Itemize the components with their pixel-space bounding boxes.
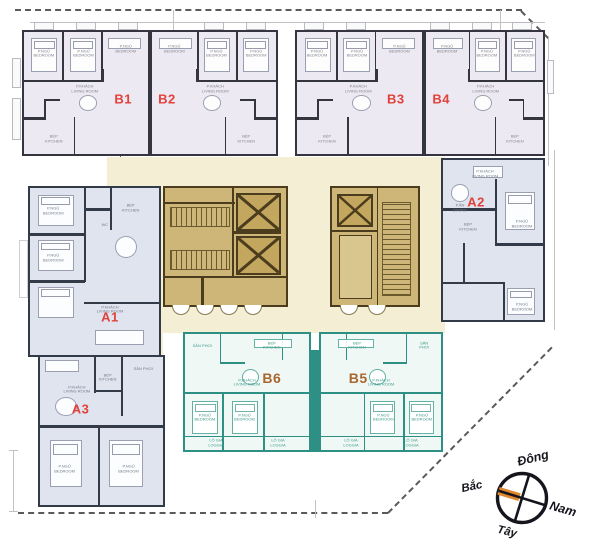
balcony-ledge	[76, 22, 96, 30]
room-label-kitchen: BẾP KITCHEN	[459, 223, 477, 232]
bed	[109, 440, 143, 487]
room-label-kitchen: BẾP KITCHEN	[99, 373, 117, 382]
wall	[406, 334, 408, 364]
wall	[40, 425, 163, 428]
unit-label-B6: B6	[262, 370, 281, 386]
balcony-ledge	[430, 22, 450, 30]
unit-B6: P.KHÁCH LIVING ROOMBẾP KITCHENSÂN PHƠIP.…	[183, 332, 311, 452]
wall	[317, 99, 319, 120]
bed	[370, 401, 395, 433]
room-label-yard: SÂN PHƠI	[134, 367, 153, 372]
bed	[38, 287, 74, 319]
wall	[256, 117, 276, 119]
wall	[110, 188, 112, 230]
wall	[102, 69, 104, 82]
bed	[343, 38, 369, 72]
room-label-living: P.KHÁCH LIVING ROOM	[71, 85, 98, 94]
room-label-living: P.KHÁCH LIVING ROOM	[64, 385, 91, 394]
table	[369, 369, 386, 385]
unit-B2: P.KHÁCH LIVING ROOMP.NGỦ BEDROOMP.NGỦ BE…	[150, 30, 278, 156]
wall	[336, 32, 338, 81]
wall	[121, 357, 123, 416]
wall	[469, 80, 543, 82]
balcony-ledge	[204, 22, 224, 30]
unit-A1: P.KHÁCH LIVING ROOMP.NGỦ BEDROOMP.NGỦ BE…	[28, 186, 161, 357]
wall	[198, 80, 276, 82]
unit-A3: P.KHÁCH LIVING ROOMBẾP KITCHENSÂN PHƠIP.…	[38, 355, 165, 507]
bed	[192, 401, 218, 433]
wall	[94, 357, 96, 393]
table	[203, 95, 222, 111]
wall	[524, 117, 543, 119]
wall	[495, 117, 497, 154]
unit-B4: P.KHÁCH LIVING ROOMP.NGỦ BEDROOMP.NGỦ BE…	[424, 30, 545, 156]
table	[115, 236, 137, 258]
wall	[376, 69, 378, 82]
wall	[364, 394, 366, 450]
room-label-loggia: LÔ GIA LOGGIA	[343, 439, 358, 448]
wall	[185, 392, 309, 394]
furniture	[159, 38, 191, 49]
bed	[50, 440, 82, 487]
unit-label-A1: A1	[101, 309, 119, 324]
room-label-kitchen: BẾP KITCHEN	[237, 135, 255, 144]
wall	[495, 179, 497, 246]
furniture	[95, 330, 144, 345]
furniture	[473, 166, 503, 177]
bed	[505, 192, 535, 230]
balcony-ledge	[118, 22, 138, 30]
wall	[254, 99, 256, 120]
room-label-yard: SÂN PHƠI	[416, 341, 433, 350]
unit-label-A3: A3	[72, 401, 90, 416]
bed	[232, 401, 258, 433]
room-label-loggia: LÔ GIA LOGGIA	[270, 439, 285, 448]
furniture	[254, 339, 291, 348]
wall	[84, 302, 159, 305]
wall	[44, 99, 60, 101]
furniture	[433, 38, 463, 49]
balcony-ledge	[304, 22, 324, 30]
bed	[38, 195, 74, 227]
furniture	[45, 360, 79, 372]
table	[352, 95, 371, 111]
balcony-ledge	[512, 22, 532, 30]
wall	[297, 117, 317, 119]
unit-A2: P.KHÁCH LIVING ROOMP.ĂN DININGBẾP KITCHE…	[441, 158, 545, 322]
floor-plan: P.KHÁCH LIVING ROOMP.NGỦ BEDROOMP.NGỦ BE…	[0, 0, 600, 550]
table	[242, 369, 259, 385]
wall	[523, 99, 525, 120]
wall	[321, 392, 441, 394]
unit-B5: P.KHÁCH LIVING ROOMBẾP KITCHENSÂN PHƠIP.…	[319, 332, 443, 452]
wall	[321, 436, 441, 437]
unit-label-B3: B3	[387, 92, 405, 107]
balcony-ledge	[246, 22, 266, 30]
wall	[30, 280, 85, 283]
wall	[24, 117, 44, 119]
wall	[185, 436, 309, 437]
room-label-kitchen: BẾP KITCHEN	[506, 135, 524, 144]
compass: Đông Bắc Nam Tây	[455, 440, 600, 550]
bed	[31, 38, 57, 72]
room-label-yard: SÂN PHƠI	[193, 343, 212, 348]
room-label-loggia: LÔ GIA LOGGIA	[403, 439, 418, 448]
wall	[403, 394, 405, 450]
wall	[317, 99, 333, 101]
furniture	[382, 38, 415, 49]
bed	[305, 38, 331, 72]
wall	[98, 425, 100, 505]
balcony-ledge	[472, 22, 492, 30]
wall	[236, 32, 238, 81]
wall	[297, 80, 376, 82]
bed	[409, 401, 434, 433]
unit-label-B5: B5	[349, 370, 368, 386]
unit-label-A2: A2	[467, 194, 485, 209]
bed	[511, 38, 536, 72]
unit-B3: P.KHÁCH LIVING ROOMP.NGỦ BEDROOMP.NGỦ BE…	[295, 30, 424, 156]
room-label-living: P.KHÁCH LIVING ROOM	[202, 85, 229, 94]
balcony-ledge	[12, 98, 21, 140]
table	[79, 95, 98, 111]
table	[474, 95, 492, 111]
furniture	[338, 339, 374, 348]
unit-label-B4: B4	[432, 92, 450, 107]
wall	[509, 99, 524, 101]
wall	[240, 99, 256, 101]
bed	[243, 38, 269, 72]
wall	[220, 334, 222, 364]
wall	[443, 282, 503, 285]
wall	[44, 99, 46, 120]
wall	[196, 69, 198, 82]
furniture	[108, 38, 140, 49]
room-label-kitchen: BẾP KITCHEN	[122, 204, 140, 213]
wall	[468, 69, 470, 82]
bed	[475, 38, 500, 72]
bed	[70, 38, 96, 72]
balcony-ledge	[34, 22, 54, 30]
balcony-ledge	[12, 58, 21, 88]
bed	[204, 38, 230, 72]
unit-label-B2: B2	[158, 92, 176, 107]
wall	[505, 32, 507, 81]
wall	[347, 117, 349, 154]
wall	[220, 362, 245, 364]
wall	[225, 117, 227, 154]
wall	[62, 32, 64, 81]
wall	[383, 362, 407, 364]
wall	[24, 80, 102, 82]
bed	[38, 240, 74, 272]
wall	[74, 117, 76, 154]
balcony-ledge	[547, 60, 554, 94]
wall	[94, 390, 121, 393]
wall	[495, 243, 543, 246]
unit-B1: P.KHÁCH LIVING ROOMP.NGỦ BEDROOMP.NGỦ BE…	[22, 30, 150, 156]
room-label-kitchen: BẾP KITCHEN	[318, 135, 336, 144]
wall	[30, 233, 85, 236]
wall	[263, 394, 265, 450]
wall	[463, 243, 465, 283]
bed	[507, 288, 535, 315]
unit-label-B1: B1	[114, 92, 132, 107]
wall	[84, 208, 110, 211]
wall	[503, 282, 505, 320]
room-label-living: P.KHÁCH LIVING ROOM	[345, 85, 372, 94]
room-label-kitchen: BẾP KITCHEN	[45, 135, 63, 144]
room-label-living: P.KHÁCH LIVING ROOM	[472, 85, 499, 94]
balcony-ledge	[346, 22, 366, 30]
room-label-wc: WC	[101, 222, 108, 227]
wall	[222, 394, 224, 450]
